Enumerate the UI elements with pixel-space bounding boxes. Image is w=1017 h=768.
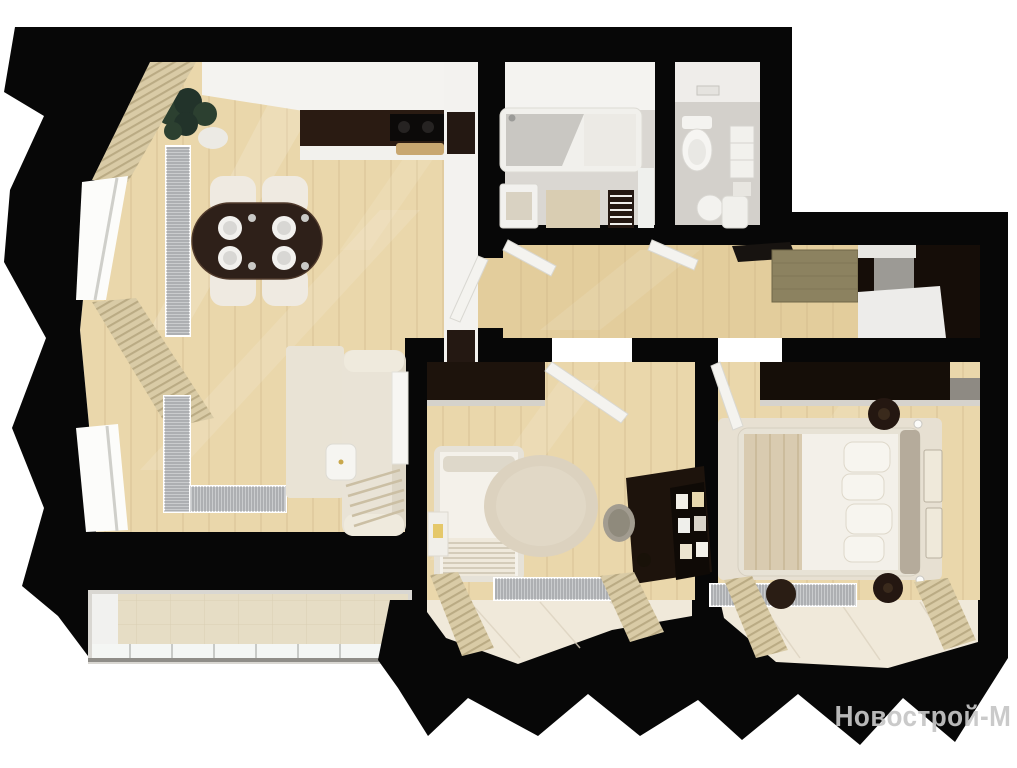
bathroom-partition (638, 168, 654, 228)
pouf (766, 579, 796, 609)
hall-wardrobe (858, 245, 980, 338)
balcony-glazing (92, 644, 410, 658)
tv-panel (392, 372, 408, 464)
balcony (88, 590, 412, 664)
double-bed (738, 428, 920, 576)
desk-chair (603, 504, 635, 542)
desk (626, 466, 712, 584)
desk-lamp (637, 553, 651, 567)
balcony-column (92, 594, 118, 644)
nightstand (873, 573, 903, 603)
floor-plan-canvas (0, 0, 1017, 768)
round-rug (484, 455, 598, 557)
watermark-text: Новострой-М (834, 701, 1011, 734)
headboard (900, 430, 920, 574)
floor-plan-render: Новострой-М (0, 0, 1017, 768)
toilet (682, 116, 712, 171)
bath-mat (546, 190, 600, 228)
bathtub (500, 108, 642, 172)
radiator-grille (166, 146, 190, 336)
coffee-table (326, 444, 356, 480)
towel-ladder (608, 190, 634, 228)
kitchen-tall-unit (444, 62, 478, 396)
cooktop-icon (390, 114, 444, 141)
washing-machine (500, 184, 538, 228)
wc-cabinet (730, 126, 754, 196)
vent-grille (697, 86, 719, 95)
hall-rug (772, 250, 858, 302)
faucet-icon (509, 115, 516, 122)
cutting-board (396, 143, 444, 155)
kids-wardrobe (427, 362, 545, 406)
bedroom-wardrobe (760, 362, 980, 406)
nightstand (868, 398, 900, 430)
bedside-unit (428, 512, 448, 556)
